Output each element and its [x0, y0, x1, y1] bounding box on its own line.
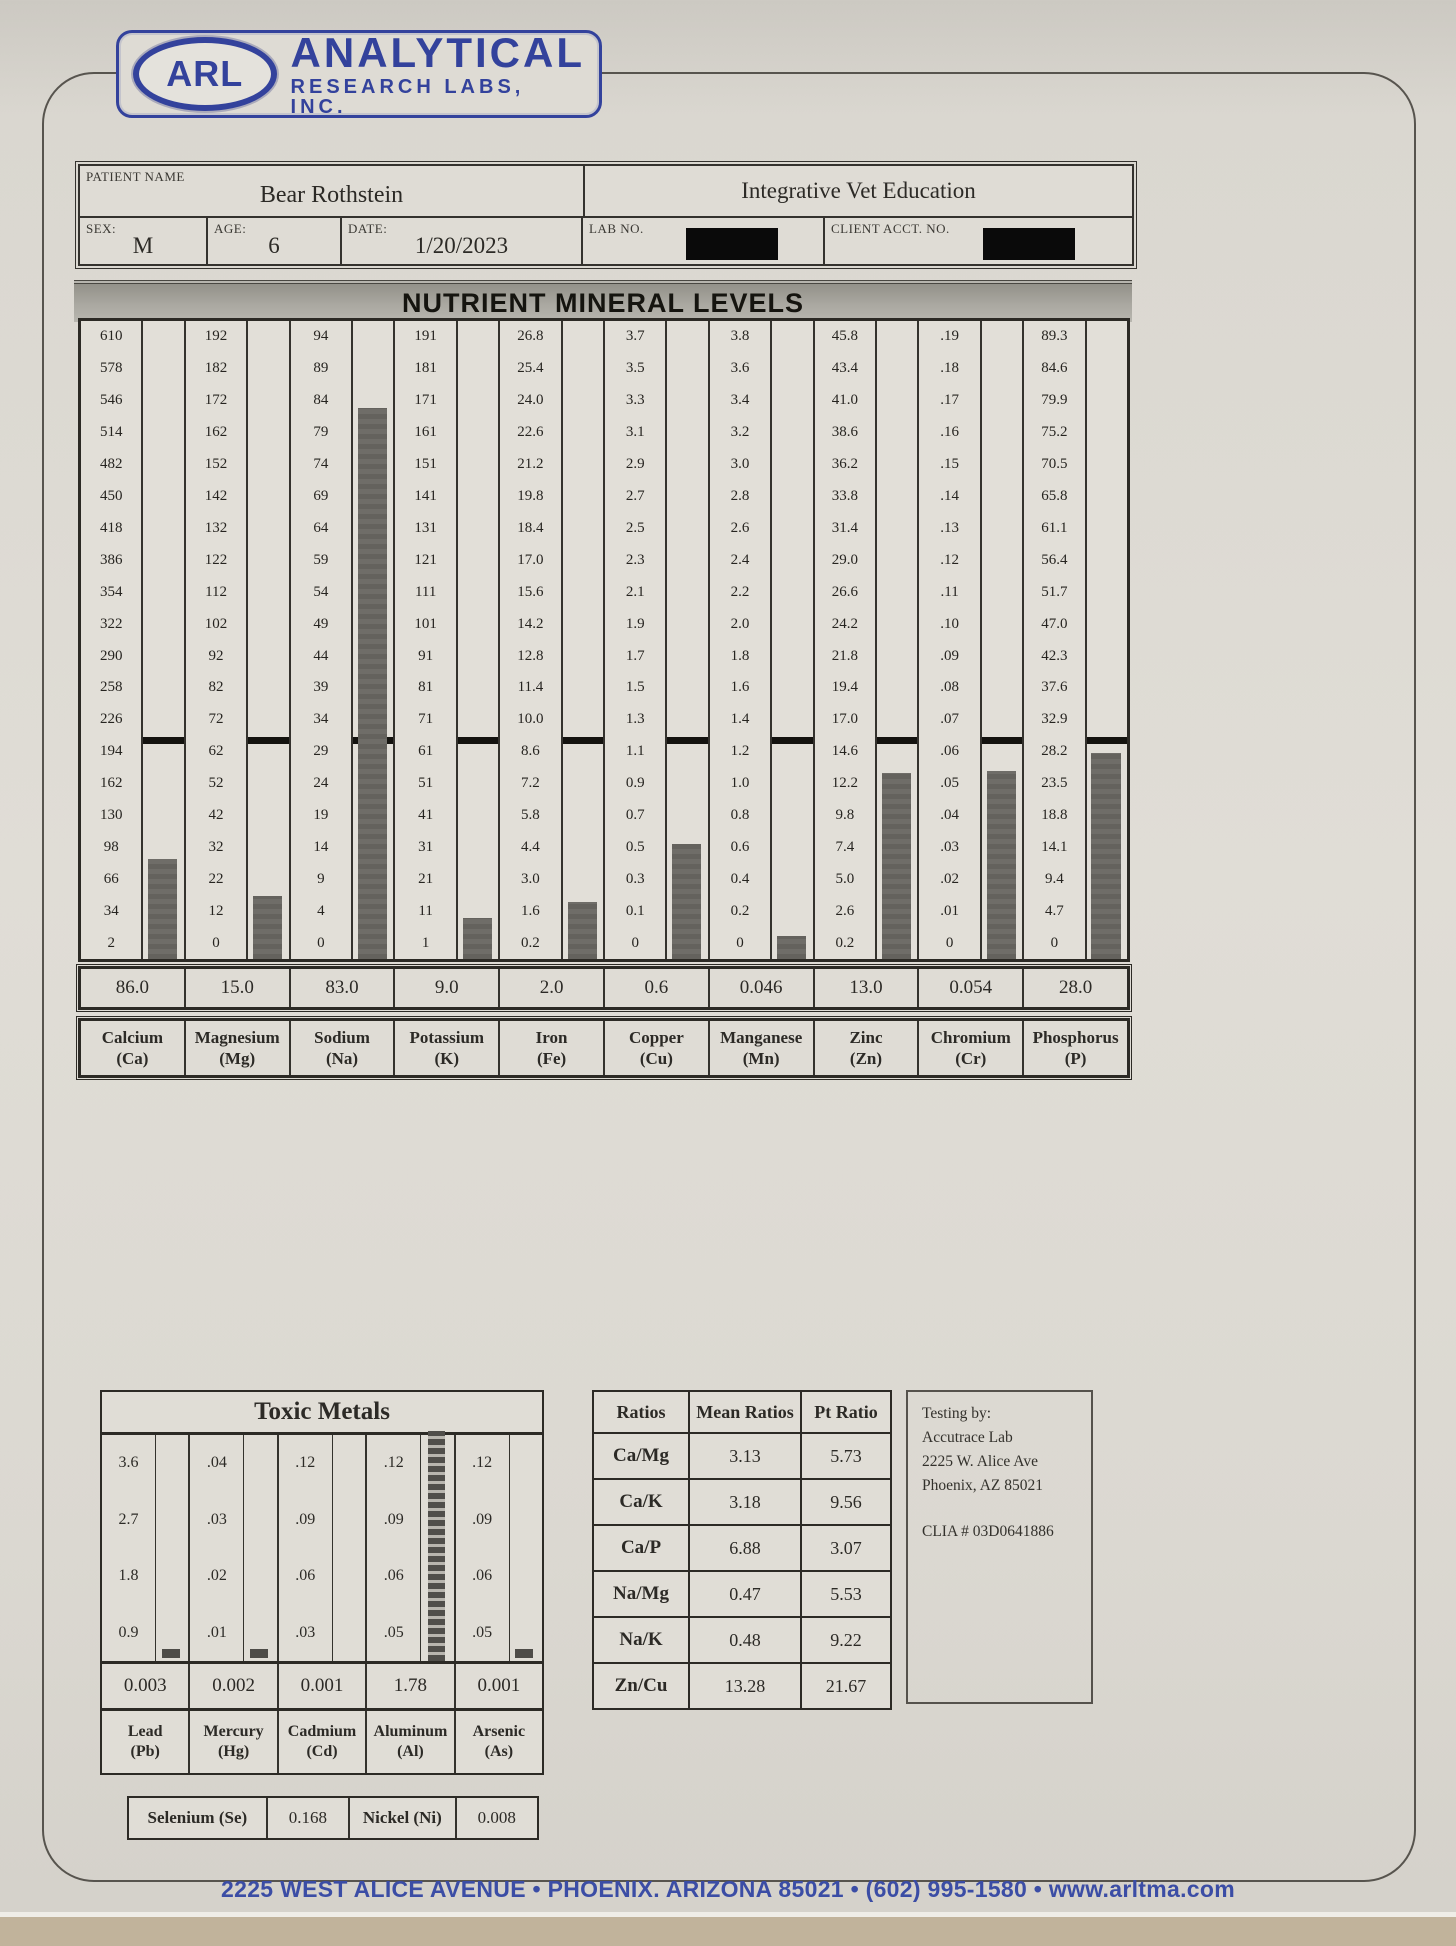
scale-tick: 62	[186, 736, 246, 768]
extra-metal-value: 0.008	[457, 1798, 537, 1838]
scale-tick: .02	[919, 863, 979, 895]
bar-column-sodium	[353, 321, 393, 959]
scale-tick: 64	[291, 512, 351, 544]
scale-tick: 37.6	[1024, 672, 1084, 704]
scale-labels-manganese: 3.83.63.43.23.02.82.62.42.22.01.81.61.41…	[710, 321, 772, 959]
scale-tick: 1.8	[710, 640, 770, 672]
toxic-symbol-text: (Pb)	[131, 1742, 160, 1762]
scale-tick: .10	[919, 608, 979, 640]
mineral-column-magnesium: 1921821721621521421321221121029282726252…	[184, 321, 289, 959]
toxic-column-arsenic: .12.09.06.05	[454, 1435, 542, 1661]
ratio-pt-value: 21.67	[802, 1664, 890, 1708]
scale-tick: 3.8	[710, 321, 770, 353]
toxic-bar-mercury	[250, 1649, 268, 1658]
scale-labels-zinc: 45.843.441.038.636.233.831.429.026.624.2…	[815, 321, 877, 959]
scale-tick: 32	[186, 832, 246, 864]
scale-tick: 11	[395, 895, 455, 927]
mineral-name-text: Potassium	[409, 1027, 484, 1048]
scale-tick: 0	[186, 927, 246, 959]
toxic-symbol-text: (Cd)	[306, 1742, 337, 1762]
scale-tick: .18	[919, 353, 979, 385]
toxic-scale-labels-mercury: .04.03.02.01	[190, 1435, 244, 1661]
scale-tick: 192	[186, 321, 246, 353]
scale-tick: 2.8	[710, 481, 770, 513]
scale-tick: .06	[279, 1548, 332, 1605]
scale-tick: 3.2	[710, 417, 770, 449]
mineral-column-iron: 26.825.424.022.621.219.818.417.015.614.2…	[498, 321, 603, 959]
arl-logo-badge-icon: ARL	[133, 37, 277, 111]
scale-tick: 3.6	[102, 1435, 155, 1492]
bar-column-manganese	[772, 321, 812, 959]
scale-tick: 12	[186, 895, 246, 927]
scale-tick: .11	[919, 576, 979, 608]
mineral-column-potassium: 1911811711611511411311211111019181716151…	[393, 321, 498, 959]
scale-tick: 21	[395, 863, 455, 895]
ideal-level-line	[772, 737, 812, 744]
mineral-bar-zinc	[882, 773, 911, 959]
scale-tick: 7.2	[500, 768, 560, 800]
scale-tick: 0.8	[710, 800, 770, 832]
scale-tick: 386	[81, 544, 141, 576]
scale-tick: .09	[279, 1492, 332, 1549]
mineral-symbol-text: (Zn)	[850, 1048, 882, 1069]
toxic-value-lead: 0.003	[102, 1664, 190, 1708]
bar-column-magnesium	[248, 321, 288, 959]
nutrient-mineral-levels-header: NUTRIENT MINERAL LEVELS	[74, 280, 1132, 322]
scale-tick: 9.4	[1024, 863, 1084, 895]
toxic-name-text: Aluminum	[374, 1722, 448, 1742]
scale-labels-phosphorus: 89.384.679.975.270.565.861.156.451.747.0…	[1024, 321, 1086, 959]
scale-tick: 3.5	[605, 353, 665, 385]
toxic-column-aluminum: .12.09.06.05	[365, 1435, 453, 1661]
bar-column-copper	[667, 321, 707, 959]
scale-tick: 122	[186, 544, 246, 576]
mineral-symbol-text: (K)	[435, 1048, 460, 1069]
scale-tick: 162	[81, 768, 141, 800]
mineral-name-chromium: Chromium(Cr)	[919, 1021, 1024, 1075]
mineral-name-manganese: Manganese(Mn)	[710, 1021, 815, 1075]
scale-tick: 41.0	[815, 385, 875, 417]
mineral-value-chromium: 0.054	[919, 969, 1024, 1007]
testing-by-line: CLIA # 03D0641886	[922, 1520, 1091, 1544]
mineral-values-row: 86.015.083.09.02.00.60.04613.00.05428.0	[78, 966, 1130, 1010]
mineral-name-text: Copper	[629, 1027, 684, 1048]
scale-tick: 2.9	[605, 449, 665, 481]
mineral-value-zinc: 13.0	[815, 969, 920, 1007]
scale-tick: 19.8	[500, 481, 560, 513]
scale-tick: 2.3	[605, 544, 665, 576]
extra-metal-label: Nickel (Ni)	[350, 1798, 457, 1838]
mineral-name-phosphorus: Phosphorus(P)	[1024, 1021, 1127, 1075]
scale-tick: 66	[81, 863, 141, 895]
scale-tick: .15	[919, 449, 979, 481]
ideal-level-line	[1087, 737, 1127, 744]
scale-tick: 21.2	[500, 449, 560, 481]
scale-tick: 578	[81, 353, 141, 385]
scale-tick: .06	[456, 1548, 509, 1605]
scale-tick: .12	[456, 1435, 509, 1492]
ratio-pt-value: 3.07	[802, 1526, 890, 1570]
scale-tick: 4.7	[1024, 895, 1084, 927]
mineral-bar-magnesium	[253, 896, 282, 959]
testing-by-line: Accutrace Lab	[922, 1426, 1091, 1450]
scale-tick: 75.2	[1024, 417, 1084, 449]
ratio-mean-value: 13.28	[690, 1664, 802, 1708]
scale-tick: 28.2	[1024, 736, 1084, 768]
mineral-symbol-text: (P)	[1065, 1048, 1087, 1069]
toxic-name-cadmium: Cadmium(Cd)	[279, 1711, 367, 1773]
toxic-bar-aluminum	[428, 1431, 444, 1661]
ratio-row-na-mg: Na/Mg0.475.53	[594, 1572, 890, 1618]
scale-tick: 33.8	[815, 481, 875, 513]
date-cell: DATE: 1/20/2023	[342, 218, 583, 264]
scale-tick: 1.7	[605, 640, 665, 672]
scale-tick: 12.8	[500, 640, 560, 672]
ratios-header-row: RatiosMean RatiosPt Ratio	[594, 1392, 890, 1434]
toxic-symbol-text: (Hg)	[218, 1742, 249, 1762]
scale-tick: 2.0	[710, 608, 770, 640]
scale-tick: 69	[291, 481, 351, 513]
mineral-value-manganese: 0.046	[710, 969, 815, 1007]
toxic-bar-arsenic	[515, 1649, 533, 1658]
mineral-bar-sodium	[358, 408, 387, 959]
scale-tick: 2.7	[605, 481, 665, 513]
scale-tick: 2.1	[605, 576, 665, 608]
scale-tick: 514	[81, 417, 141, 449]
scale-tick: 22	[186, 863, 246, 895]
sex-label: SEX:	[86, 221, 116, 237]
scale-tick: 29.0	[815, 544, 875, 576]
scale-tick: 21.8	[815, 640, 875, 672]
bar-column-zinc	[877, 321, 917, 959]
scale-tick: .03	[279, 1605, 332, 1662]
patient-row-1: PATIENT NAME Bear Rothstein Integrative …	[80, 166, 1132, 218]
scale-tick: .14	[919, 481, 979, 513]
ratio-label: Ca/Mg	[594, 1434, 690, 1478]
scale-tick: 4.4	[500, 832, 560, 864]
ratio-label: Na/Mg	[594, 1572, 690, 1616]
scale-tick: 52	[186, 768, 246, 800]
mineral-value-magnesium: 15.0	[186, 969, 291, 1007]
mineral-symbol-text: (Cu)	[640, 1048, 673, 1069]
scale-tick: .06	[367, 1548, 420, 1605]
mineral-bar-manganese	[777, 936, 806, 959]
toxic-value-arsenic: 0.001	[456, 1664, 542, 1708]
scale-tick: 3.0	[500, 863, 560, 895]
mineral-name-iron: Iron(Fe)	[500, 1021, 605, 1075]
scale-tick: 32.9	[1024, 704, 1084, 736]
scale-tick: 418	[81, 512, 141, 544]
ratio-row-zn-cu: Zn/Cu13.2821.67	[594, 1664, 890, 1708]
scale-tick: 152	[186, 449, 246, 481]
scale-labels-chromium: .19.18.17.16.15.14.13.12.11.10.09.08.07.…	[919, 321, 981, 959]
scale-tick: 0.9	[102, 1605, 155, 1662]
mineral-name-text: Chromium	[931, 1027, 1011, 1048]
toxic-bar-lead	[162, 1649, 180, 1658]
scale-tick: 1.2	[710, 736, 770, 768]
scale-tick: 92	[186, 640, 246, 672]
ratio-mean-value: 0.48	[690, 1618, 802, 1662]
scale-tick: 172	[186, 385, 246, 417]
scale-tick: 0.1	[605, 895, 665, 927]
scale-tick: 2.4	[710, 544, 770, 576]
mineral-column-zinc: 45.843.441.038.636.233.831.429.026.624.2…	[813, 321, 918, 959]
scale-tick: 11.4	[500, 672, 560, 704]
mineral-name-copper: Copper(Cu)	[605, 1021, 710, 1075]
scale-tick: 0.4	[710, 863, 770, 895]
scale-tick: 17.0	[500, 544, 560, 576]
mineral-bar-potassium	[463, 918, 492, 959]
scale-tick: 79.9	[1024, 385, 1084, 417]
scale-tick: 5.0	[815, 863, 875, 895]
scale-tick: 161	[395, 417, 455, 449]
mineral-symbol-text: (Mn)	[743, 1048, 780, 1069]
scale-tick: 84	[291, 385, 351, 417]
scale-tick: 47.0	[1024, 608, 1084, 640]
scale-tick: 1	[395, 927, 455, 959]
scale-tick: 65.8	[1024, 481, 1084, 513]
toxic-symbol-text: (Al)	[397, 1742, 424, 1762]
scale-tick: 3.3	[605, 385, 665, 417]
scale-tick: 3.6	[710, 353, 770, 385]
scale-tick: 1.3	[605, 704, 665, 736]
scale-tick: 49	[291, 608, 351, 640]
scale-tick: 98	[81, 832, 141, 864]
scale-tick: 7.4	[815, 832, 875, 864]
scale-labels-magnesium: 1921821721621521421321221121029282726252…	[186, 321, 248, 959]
scale-tick: 0.2	[500, 927, 560, 959]
scale-tick: 44	[291, 640, 351, 672]
scale-tick: 34	[81, 895, 141, 927]
mineral-column-calcium: 6105785465144824504183863543222902582261…	[81, 321, 184, 959]
mineral-name-magnesium: Magnesium(Mg)	[186, 1021, 291, 1075]
toxic-name-text: Cadmium	[288, 1722, 356, 1742]
scale-tick: 74	[291, 449, 351, 481]
scale-tick: 22.6	[500, 417, 560, 449]
ratio-pt-value: 9.56	[802, 1480, 890, 1524]
ratio-mean-value: 3.18	[690, 1480, 802, 1524]
scale-tick: 1.6	[500, 895, 560, 927]
scale-tick: 0	[1024, 927, 1084, 959]
mineral-bar-copper	[672, 844, 701, 959]
toxic-bar-column-arsenic	[510, 1435, 542, 1661]
scale-tick: 2.5	[605, 512, 665, 544]
scale-tick: 0.9	[605, 768, 665, 800]
scale-tick: 131	[395, 512, 455, 544]
scale-tick: 39	[291, 672, 351, 704]
logo-line2: RESEARCH LABS, INC.	[291, 77, 585, 117]
scale-tick: 8.6	[500, 736, 560, 768]
toxic-bar-column-mercury	[244, 1435, 276, 1661]
scale-tick: 2.7	[102, 1492, 155, 1549]
scale-tick: 1.5	[605, 672, 665, 704]
nutrient-mineral-levels-title: NUTRIENT MINERAL LEVELS	[402, 288, 804, 319]
toxic-name-aluminum: Aluminum(Al)	[367, 1711, 455, 1773]
scale-tick: .03	[919, 832, 979, 864]
ideal-level-line	[458, 737, 498, 744]
scale-tick: 72	[186, 704, 246, 736]
patient-row-2: SEX: M AGE: 6 DATE: 1/20/2023 LAB NO. CL…	[80, 218, 1132, 264]
ratio-label: Ca/P	[594, 1526, 690, 1570]
scale-tick: 43.4	[815, 353, 875, 385]
scale-tick: .13	[919, 512, 979, 544]
scale-tick: 102	[186, 608, 246, 640]
scale-tick: 3.1	[605, 417, 665, 449]
ratio-mean-value: 0.47	[690, 1572, 802, 1616]
scale-tick: 151	[395, 449, 455, 481]
patient-info-table: PATIENT NAME Bear Rothstein Integrative …	[78, 164, 1134, 266]
lab-no-redaction	[686, 228, 778, 260]
logo-line1: ANALYTICAL	[291, 32, 585, 74]
toxic-scale-labels-lead: 3.62.71.80.9	[102, 1435, 156, 1661]
bar-column-calcium	[143, 321, 183, 959]
scale-tick: 112	[186, 576, 246, 608]
mineral-symbol-text: (Ca)	[116, 1048, 148, 1069]
scale-tick: 182	[186, 353, 246, 385]
mineral-name-text: Phosphorus	[1033, 1027, 1119, 1048]
scale-tick: 54	[291, 576, 351, 608]
scale-tick: 111	[395, 576, 455, 608]
scale-tick: 0.2	[710, 895, 770, 927]
spacer	[922, 1498, 1091, 1520]
ideal-level-line	[667, 737, 707, 744]
scale-tick: 2.6	[710, 512, 770, 544]
ideal-level-line	[563, 737, 603, 744]
scale-tick: .03	[190, 1492, 243, 1549]
scale-tick: .09	[919, 640, 979, 672]
scale-tick: 51.7	[1024, 576, 1084, 608]
mineral-symbol-text: (Mg)	[219, 1048, 255, 1069]
lab-no-cell: LAB NO.	[583, 218, 825, 264]
scale-tick: 26.6	[815, 576, 875, 608]
scale-tick: 25.4	[500, 353, 560, 385]
date-label: DATE:	[348, 221, 387, 237]
age-label: AGE:	[214, 221, 246, 237]
mineral-value-copper: 0.6	[605, 969, 710, 1007]
toxic-name-mercury: Mercury(Hg)	[190, 1711, 278, 1773]
ratio-row-ca-k: Ca/K3.189.56	[594, 1480, 890, 1526]
toxic-scale-labels-arsenic: .12.09.06.05	[456, 1435, 510, 1661]
scale-tick: 0	[919, 927, 979, 959]
scale-tick: 1.4	[710, 704, 770, 736]
ratio-row-ca-p: Ca/P6.883.07	[594, 1526, 890, 1572]
ratio-pt-value: 5.73	[802, 1434, 890, 1478]
toxic-name-arsenic: Arsenic(As)	[456, 1711, 542, 1773]
mineral-value-iron: 2.0	[500, 969, 605, 1007]
scale-tick: 5.8	[500, 800, 560, 832]
mineral-name-text: Iron	[536, 1027, 568, 1048]
scale-tick: 546	[81, 385, 141, 417]
scale-tick: 42.3	[1024, 640, 1084, 672]
ratio-pt-value: 9.22	[802, 1618, 890, 1662]
toxic-column-lead: 3.62.71.80.9	[102, 1435, 188, 1661]
toxic-scale-labels-cadmium: .12.09.06.03	[279, 1435, 333, 1661]
scale-tick: 84.6	[1024, 353, 1084, 385]
scale-tick: .05	[456, 1605, 509, 1662]
scale-tick: 1.9	[605, 608, 665, 640]
scale-tick: 89	[291, 353, 351, 385]
scale-tick: 14.1	[1024, 832, 1084, 864]
mineral-name-text: Manganese	[720, 1027, 802, 1048]
scale-tick: 0.2	[815, 927, 875, 959]
ratios-header-2: Mean Ratios	[690, 1392, 802, 1432]
scale-tick: .09	[367, 1492, 420, 1549]
sex-value: M	[133, 233, 153, 259]
scale-tick: 24.0	[500, 385, 560, 417]
scale-tick: 41	[395, 800, 455, 832]
toxic-value-mercury: 0.002	[190, 1664, 278, 1708]
scale-tick: 56.4	[1024, 544, 1084, 576]
scale-tick: 9.8	[815, 800, 875, 832]
patient-name-value: Bear Rothstein	[260, 182, 403, 209]
scale-tick: 132	[186, 512, 246, 544]
toxic-values-row: 0.0030.0020.0011.780.001	[102, 1661, 542, 1711]
toxic-metals-box: Toxic Metals 3.62.71.80.9.04.03.02.01.12…	[100, 1390, 544, 1775]
scale-tick: 19.4	[815, 672, 875, 704]
ratio-label: Ca/K	[594, 1480, 690, 1524]
mineral-name-calcium: Calcium(Ca)	[81, 1021, 186, 1075]
mineral-value-calcium: 86.0	[81, 969, 186, 1007]
ratios-header-3: Pt Ratio	[802, 1392, 890, 1432]
scale-labels-potassium: 1911811711611511411311211111019181716151…	[395, 321, 457, 959]
testing-by-line: Phoenix, AZ 85021	[922, 1474, 1091, 1498]
ratios-header-1: Ratios	[594, 1392, 690, 1432]
toxic-bar-column-cadmium	[333, 1435, 365, 1661]
toxic-column-cadmium: .12.09.06.03	[277, 1435, 365, 1661]
scale-tick: 2.2	[710, 576, 770, 608]
bar-column-potassium	[458, 321, 498, 959]
toxic-name-text: Mercury	[204, 1722, 264, 1742]
scale-tick: 181	[395, 353, 455, 385]
scale-tick: 0	[605, 927, 665, 959]
scale-tick: 450	[81, 481, 141, 513]
scale-tick: 24.2	[815, 608, 875, 640]
scale-tick: 94	[291, 321, 351, 353]
scale-tick: .02	[190, 1548, 243, 1605]
scale-tick: 18.4	[500, 512, 560, 544]
scale-tick: .05	[919, 768, 979, 800]
scale-tick: 0	[710, 927, 770, 959]
toxic-metals-title: Toxic Metals	[102, 1392, 542, 1435]
scale-tick: 34	[291, 704, 351, 736]
arl-logo-text: ANALYTICAL RESEARCH LABS, INC.	[291, 32, 585, 117]
scale-tick: .12	[279, 1435, 332, 1492]
mineral-name-text: Sodium	[314, 1027, 370, 1048]
toxic-value-cadmium: 0.001	[279, 1664, 367, 1708]
scale-tick: 38.6	[815, 417, 875, 449]
mineral-name-text: Magnesium	[195, 1027, 280, 1048]
bar-column-iron	[563, 321, 603, 959]
scale-tick: 89.3	[1024, 321, 1084, 353]
scale-tick: 79	[291, 417, 351, 449]
scale-tick: .04	[190, 1435, 243, 1492]
arl-logo: ARL ANALYTICAL RESEARCH LABS, INC.	[116, 30, 602, 118]
mineral-bar-phosphorus	[1091, 753, 1120, 959]
scale-tick: 82	[186, 672, 246, 704]
bar-column-chromium	[982, 321, 1022, 959]
toxic-bar-column-aluminum	[421, 1435, 453, 1661]
scale-tick: .16	[919, 417, 979, 449]
ideal-level-line	[877, 737, 917, 744]
scale-tick: .07	[919, 704, 979, 736]
toxic-metals-chart: 3.62.71.80.9.04.03.02.01.12.09.06.03.12.…	[102, 1435, 542, 1661]
patient-name-cell: PATIENT NAME Bear Rothstein	[80, 166, 585, 216]
extra-metal-value: 0.168	[268, 1798, 350, 1838]
scale-tick: 101	[395, 608, 455, 640]
scale-tick: 42	[186, 800, 246, 832]
scale-tick: 14.6	[815, 736, 875, 768]
scale-tick: .06	[919, 736, 979, 768]
